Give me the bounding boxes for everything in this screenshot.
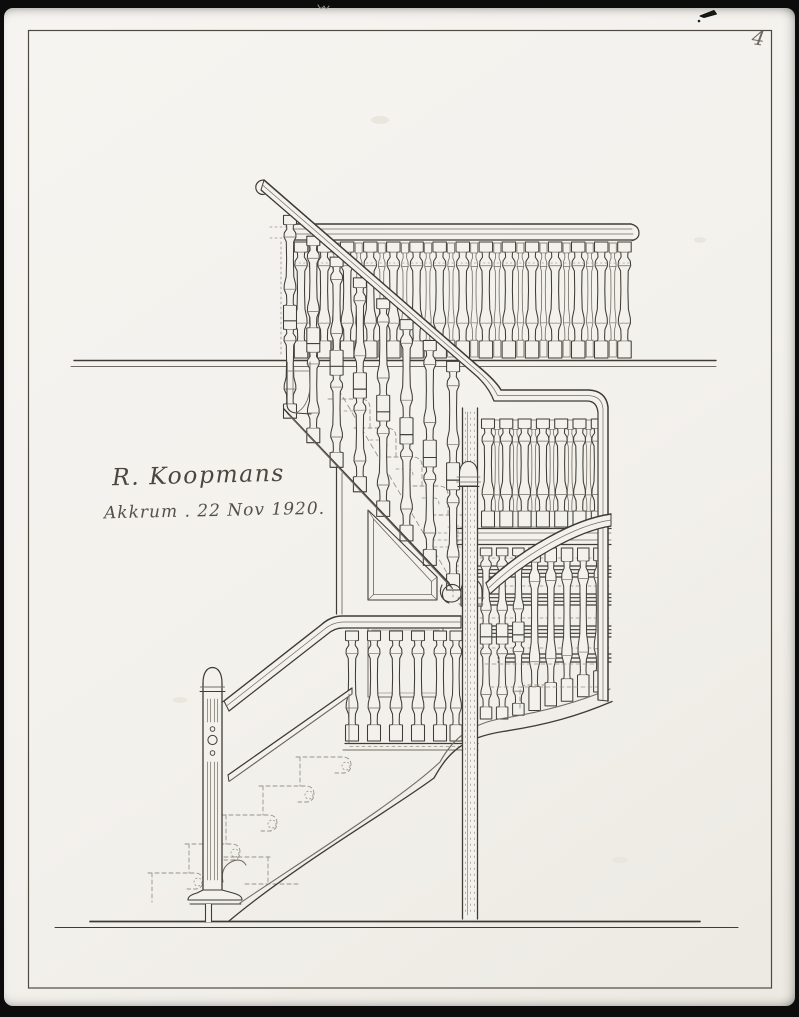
scanned-sheet: R. Koopmans Akkrum . 22 Nov 1920. 4 <box>0 0 799 1017</box>
signature-name: R. Koopmans <box>112 459 286 492</box>
